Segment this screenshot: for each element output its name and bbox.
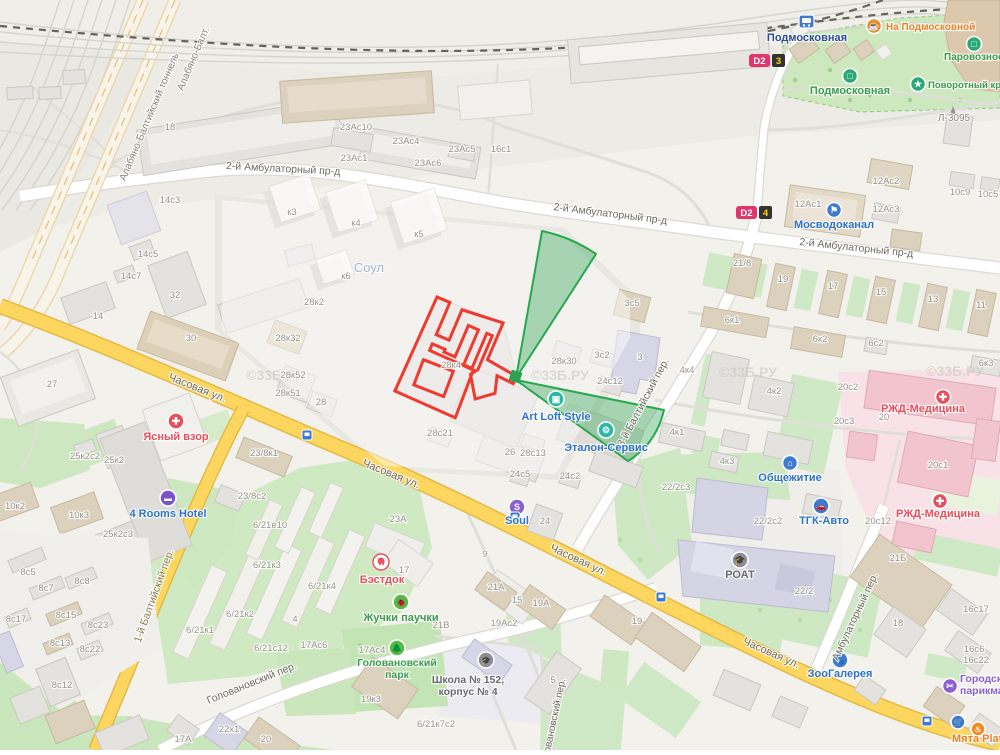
svg-text:Soul: Soul bbox=[505, 515, 529, 527]
svg-text:24с12: 24с12 bbox=[597, 376, 623, 387]
svg-text:22/2: 22/2 bbox=[795, 586, 814, 597]
svg-text:парк: парк bbox=[385, 669, 410, 681]
svg-text:24: 24 bbox=[540, 516, 551, 527]
svg-text:14: 14 bbox=[93, 311, 104, 322]
svg-text:17Ас4: 17Ас4 bbox=[359, 645, 386, 656]
svg-text:□: □ bbox=[971, 39, 977, 49]
svg-text:Головановский: Головановский bbox=[357, 657, 437, 669]
svg-text:8с17: 8с17 bbox=[6, 614, 27, 625]
svg-text:14с7: 14с7 bbox=[121, 271, 142, 282]
svg-text:28с13: 28с13 bbox=[520, 448, 546, 459]
svg-text:На Подмосковной: На Подмосковной bbox=[886, 22, 975, 33]
svg-text:24с2: 24с2 bbox=[560, 471, 581, 482]
svg-text:🐞: 🐞 bbox=[396, 597, 406, 607]
svg-text:8с5: 8с5 bbox=[20, 567, 35, 578]
svg-text:28к2: 28к2 bbox=[304, 297, 324, 308]
svg-text:8с15: 8с15 bbox=[56, 610, 77, 621]
svg-text:21В: 21В bbox=[433, 620, 450, 631]
svg-text:21/8: 21/8 bbox=[733, 258, 752, 269]
svg-text:11: 11 bbox=[976, 300, 986, 311]
svg-text:17: 17 bbox=[399, 565, 410, 576]
svg-text:14с5: 14с5 bbox=[138, 249, 159, 260]
svg-text:⚙: ⚙ bbox=[602, 425, 610, 435]
svg-text:12Ас1: 12Ас1 bbox=[795, 199, 822, 210]
svg-text:Ясный взор: Ясный взор bbox=[143, 431, 209, 443]
svg-text:32: 32 bbox=[170, 290, 181, 301]
svg-text:D2: D2 bbox=[753, 56, 765, 67]
svg-text:🚗: 🚗 bbox=[816, 502, 826, 511]
svg-text:10с5: 10с5 bbox=[978, 189, 999, 200]
svg-text:4к2: 4к2 bbox=[767, 386, 782, 397]
svg-text:4к1: 4к1 bbox=[670, 427, 685, 438]
svg-text:3с5: 3с5 bbox=[624, 298, 639, 309]
svg-text:23Ас1: 23Ас1 bbox=[341, 153, 368, 164]
svg-text:19: 19 bbox=[632, 616, 643, 627]
svg-text:6/21к4: 6/21к4 bbox=[308, 581, 336, 592]
svg-text:23А: 23А bbox=[390, 514, 408, 525]
svg-text:⌂: ⌂ bbox=[787, 458, 792, 468]
svg-text:25к2с2: 25к2с2 bbox=[70, 451, 100, 462]
svg-text:10к3: 10к3 bbox=[69, 510, 89, 521]
svg-text:19Ас2: 19Ас2 bbox=[491, 618, 518, 629]
svg-text:28к30: 28к30 bbox=[551, 356, 576, 367]
svg-text:8с8: 8с8 bbox=[74, 576, 89, 587]
svg-text:28с21: 28с21 bbox=[427, 428, 453, 439]
svg-text:10к2: 10к2 bbox=[5, 501, 25, 512]
svg-text:ЗооГалерея: ЗооГалерея bbox=[808, 668, 873, 680]
svg-text:3: 3 bbox=[776, 56, 781, 67]
svg-text:РЖД-Медицина: РЖД-Медицина bbox=[881, 403, 966, 415]
svg-text:27: 27 bbox=[47, 379, 58, 390]
svg-text:Эталон-Сервис: Эталон-Сервис bbox=[564, 442, 648, 454]
svg-text:5: 5 bbox=[550, 675, 555, 686]
svg-text:12Ас3: 12Ас3 bbox=[873, 204, 900, 215]
svg-text:6к1: 6к1 bbox=[725, 315, 740, 326]
svg-text:18: 18 bbox=[165, 122, 176, 133]
svg-text:25к2: 25к2 bbox=[104, 455, 124, 466]
svg-text:23/8к1: 23/8к1 bbox=[250, 448, 278, 459]
svg-text:Подмосковная: Подмосковная bbox=[810, 85, 890, 97]
svg-text:к5: к5 bbox=[414, 229, 423, 240]
svg-text:4 Rooms Hotel: 4 Rooms Hotel bbox=[129, 508, 206, 520]
svg-text:Соул: Соул bbox=[354, 260, 384, 275]
svg-text:15: 15 bbox=[512, 595, 523, 606]
svg-text:Мосводоканал: Мосводоканал bbox=[794, 219, 874, 231]
svg-text:16с6: 16с6 bbox=[964, 644, 985, 655]
svg-text:23/8с2: 23/8с2 bbox=[238, 491, 267, 502]
svg-text:20: 20 bbox=[879, 412, 890, 423]
svg-text:28к52: 28к52 bbox=[280, 370, 305, 381]
svg-text:☕: ☕ bbox=[868, 20, 879, 31]
svg-text:15: 15 bbox=[876, 287, 887, 298]
svg-text:28к4: 28к4 bbox=[441, 360, 461, 371]
svg-text:РЖД-Медицина: РЖД-Медицина bbox=[896, 508, 981, 520]
svg-text:20с1: 20с1 bbox=[928, 460, 949, 471]
svg-text:✚: ✚ bbox=[939, 393, 948, 404]
svg-text:4: 4 bbox=[292, 614, 297, 625]
svg-text:6к2: 6к2 bbox=[813, 334, 828, 345]
svg-text:17А: 17А bbox=[175, 734, 193, 745]
svg-text:6/21к3: 6/21к3 bbox=[253, 560, 281, 571]
svg-text:ТГК-Авто: ТГК-Авто bbox=[799, 515, 849, 527]
svg-text:6/21с12: 6/21с12 bbox=[254, 643, 288, 654]
svg-text:✚: ✚ bbox=[936, 497, 945, 508]
svg-text:28к32: 28к32 bbox=[275, 333, 300, 344]
svg-text:20с12: 20с12 bbox=[865, 516, 891, 527]
svg-text:Паровозное д: Паровозное д bbox=[944, 52, 1000, 63]
svg-text:8с13: 8с13 bbox=[50, 638, 71, 649]
svg-text:6к3: 6к3 bbox=[979, 358, 994, 369]
svg-text:🎓: 🎓 bbox=[734, 555, 745, 565]
svg-text:Школа № 152,: Школа № 152, bbox=[432, 674, 504, 686]
svg-text:17Ас6: 17Ас6 bbox=[301, 640, 328, 651]
svg-text:23Ас6: 23Ас6 bbox=[415, 158, 442, 169]
svg-text:8с7: 8с7 bbox=[38, 583, 53, 594]
svg-text:18: 18 bbox=[893, 618, 904, 629]
svg-text:корпус № 4: корпус № 4 bbox=[438, 686, 497, 698]
svg-text:8с22: 8с22 bbox=[80, 644, 101, 655]
svg-text:к6: к6 bbox=[341, 271, 350, 282]
svg-text:14с3: 14с3 bbox=[160, 195, 181, 206]
svg-text:6с2: 6с2 bbox=[868, 338, 883, 349]
svg-text:12Ас2: 12Ас2 bbox=[873, 176, 900, 187]
svg-text:4к3: 4к3 bbox=[720, 456, 735, 467]
svg-text:16с22: 16с22 bbox=[963, 655, 989, 666]
svg-text:3с2: 3с2 bbox=[594, 350, 609, 361]
svg-text:8с23: 8с23 bbox=[88, 620, 109, 631]
svg-text:10с9: 10с9 bbox=[950, 187, 971, 198]
svg-text:13: 13 bbox=[928, 294, 939, 305]
svg-text:23Ас10: 23Ас10 bbox=[340, 122, 372, 133]
svg-text:23Ас4: 23Ас4 bbox=[393, 136, 420, 147]
svg-text:20с2: 20с2 bbox=[838, 382, 859, 393]
svg-text:28к51: 28к51 bbox=[275, 388, 300, 399]
svg-text:Поворотный круг: Поворотный круг bbox=[928, 80, 1000, 91]
svg-text:25к2с3: 25к2с3 bbox=[103, 529, 133, 540]
svg-text:20: 20 bbox=[261, 734, 272, 745]
svg-text:⚑: ⚑ bbox=[830, 205, 838, 215]
svg-text:🛒: 🛒 bbox=[953, 717, 963, 727]
svg-text:🎓: 🎓 bbox=[481, 656, 491, 665]
svg-text:Городская: Городская bbox=[960, 673, 1000, 685]
svg-text:🌲: 🌲 bbox=[391, 642, 402, 653]
svg-text:парикмах: парикмах bbox=[960, 685, 1000, 697]
svg-text:22х1: 22х1 bbox=[219, 724, 240, 735]
svg-text:□: □ bbox=[847, 71, 853, 81]
svg-text:6/21к1: 6/21к1 bbox=[186, 625, 214, 636]
svg-text:Л-3095: Л-3095 bbox=[938, 113, 971, 124]
svg-text:3: 3 bbox=[637, 352, 642, 363]
svg-text:17: 17 bbox=[828, 281, 839, 292]
svg-text:©33Б.РУ: ©33Б.РУ bbox=[531, 367, 589, 383]
svg-text:Art Loft Style: Art Loft Style bbox=[521, 411, 590, 423]
svg-text:Мята Platinu: Мята Platinu bbox=[952, 733, 1000, 745]
svg-text:19к3: 19к3 bbox=[361, 694, 381, 705]
svg-text:23Ас5: 23Ас5 bbox=[449, 144, 476, 155]
svg-text:✚: ✚ bbox=[172, 417, 181, 428]
svg-text:22/2с3: 22/2с3 bbox=[662, 482, 691, 493]
svg-text:к3: к3 bbox=[287, 207, 296, 218]
svg-text:6/21е10: 6/21е10 bbox=[253, 520, 287, 531]
svg-text:8с12: 8с12 bbox=[52, 680, 73, 691]
svg-text:20с3: 20с3 bbox=[834, 416, 855, 427]
svg-text:Подмосковная: Подмосковная bbox=[767, 32, 847, 44]
svg-text:24с5: 24с5 bbox=[510, 469, 531, 480]
svg-text:28: 28 bbox=[316, 397, 327, 408]
svg-text:21А: 21А bbox=[488, 582, 506, 593]
svg-text:©33Б.РУ: ©33Б.РУ bbox=[719, 364, 777, 380]
svg-text:16с17: 16с17 bbox=[963, 604, 989, 615]
svg-text:16с1: 16с1 bbox=[491, 144, 512, 155]
svg-text:Жучки паучки: Жучки паучки bbox=[362, 612, 438, 624]
svg-text:S: S bbox=[514, 502, 520, 512]
svg-text:6/21к2: 6/21к2 bbox=[226, 609, 254, 620]
svg-text:✂: ✂ bbox=[946, 681, 954, 691]
svg-text:D2: D2 bbox=[740, 208, 752, 219]
svg-text:4: 4 bbox=[763, 208, 769, 219]
svg-text:©33Б.РУ: ©33Б.РУ bbox=[926, 363, 984, 379]
svg-text:6/21к7с2: 6/21к7с2 bbox=[417, 719, 455, 730]
svg-text:19А: 19А bbox=[533, 598, 551, 609]
svg-text:19: 19 bbox=[778, 274, 789, 285]
svg-text:▬: ▬ bbox=[164, 494, 172, 503]
svg-text:к4: к4 bbox=[351, 218, 360, 229]
svg-text:★: ★ bbox=[914, 79, 923, 89]
svg-text:РОАТ: РОАТ bbox=[725, 569, 755, 581]
svg-text:21Б: 21Б bbox=[890, 553, 907, 564]
svg-text:30: 30 bbox=[186, 333, 197, 344]
svg-text:9: 9 bbox=[482, 549, 487, 560]
svg-text:▣: ▣ bbox=[552, 394, 561, 404]
svg-text:4к4: 4к4 bbox=[680, 365, 695, 376]
svg-text:22/2с2: 22/2с2 bbox=[754, 516, 783, 527]
svg-text:26: 26 bbox=[505, 447, 516, 458]
svg-text:Общежитие: Общежитие bbox=[758, 472, 821, 484]
